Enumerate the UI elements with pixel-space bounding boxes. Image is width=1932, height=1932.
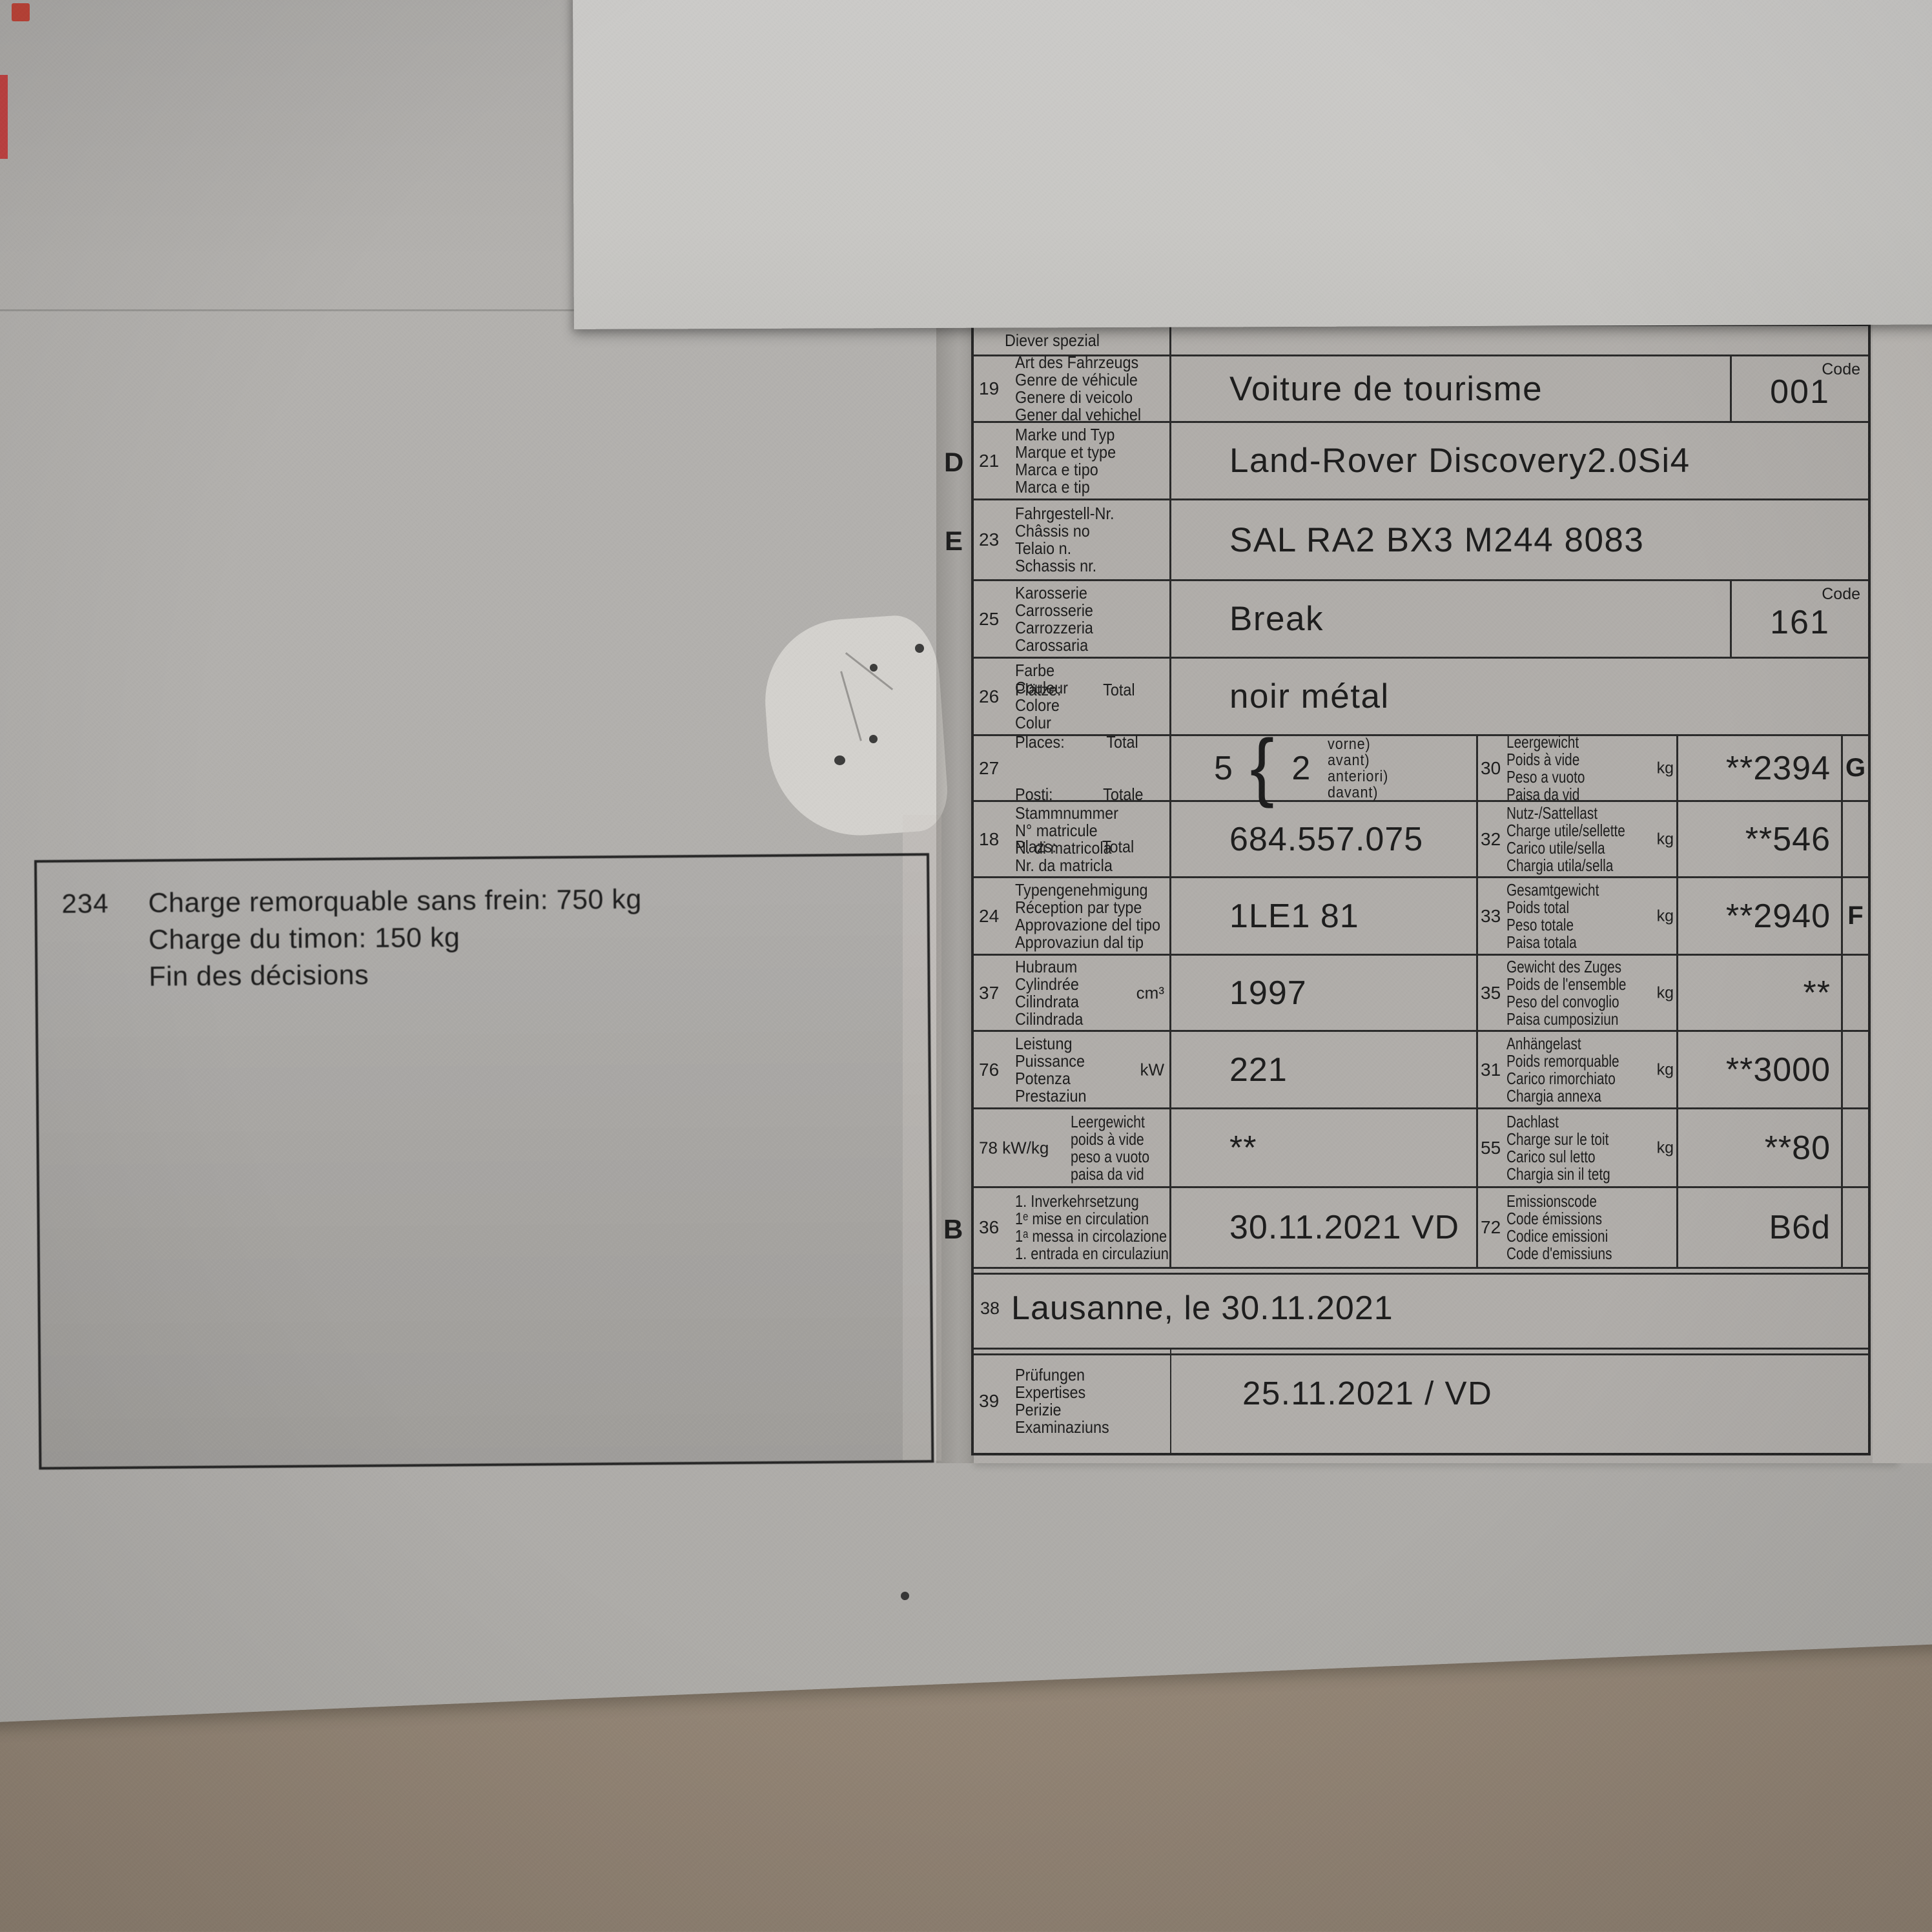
field-number: 78 kW/kg [979, 1138, 1049, 1158]
code-cell: Code 161 [1730, 581, 1868, 657]
paper-speck-dot [915, 644, 924, 653]
label-cell: 23 Fahrgestell-Nr. Châssis no Telaio n. … [974, 500, 1171, 579]
make-type-value: Land-Rover Discovery2.0Si4 [1171, 423, 1868, 498]
trailer-load-value: **3000 [1676, 1032, 1841, 1107]
field-label-line: Paisa totala [1506, 934, 1599, 951]
field-label-line: Puissance [1015, 1053, 1087, 1070]
field-label-line: Typengenehmigung [1015, 881, 1160, 899]
first-registration-value: 30.11.2021 VD [1171, 1188, 1476, 1267]
letter-cell [1841, 802, 1868, 876]
label-cell: Diever spezial [974, 326, 1171, 355]
empty-cell [1171, 326, 1868, 355]
field-label-line: Leergewicht [1506, 734, 1585, 751]
seats-value-cell: 5 { 2 vorne) avant) anteriori) davant) [1171, 736, 1476, 800]
field-label-line: Approvaziun dal tip [1015, 934, 1160, 951]
page-shadow-gap [936, 322, 976, 1463]
field-number: 37 [979, 983, 999, 1003]
registration-row-24-33: 24 Typengenehmigung Réception par type A… [974, 878, 1868, 956]
registration-row-19: 19 Art des Fahrzeugs Genre de véhicule G… [974, 356, 1868, 423]
field-label-line: Schassis nr. [1015, 557, 1114, 575]
photo-background: { "note": { "number": "234", "line1": "C… [0, 0, 1932, 1932]
displacement-value: 1997 [1171, 956, 1476, 1030]
permit-table: Diever spezial 19 Art des Fahrzeugs Genr… [971, 324, 1871, 1455]
field-number: 30 [1481, 758, 1501, 779]
paper-speck-dot [869, 735, 878, 743]
field-label-line: Fahrgestell-Nr. [1015, 505, 1114, 522]
field-label-line: Emissionscode [1506, 1193, 1612, 1210]
field-labels: Typengenehmigung Réception par type Appr… [1015, 881, 1160, 951]
field-label-line: Genere di veicolo [1015, 389, 1141, 406]
registration-row-36-72: 36 1. Inverkehrsetzung 1ᵉ mise en circul… [974, 1188, 1868, 1269]
field-labels: Stammnummer N° matricule N. di matricola… [1015, 805, 1118, 874]
field-labels: Fahrgestell-Nr. Châssis no Telaio n. Sch… [1015, 505, 1114, 575]
field-label-line: Carrosserie [1015, 602, 1093, 619]
field-label-line: Gewicht des Zuges [1506, 958, 1627, 976]
field-labels: Karosserie Carrosserie Carrozzeria Caros… [1015, 584, 1093, 654]
unit-label: kg [1657, 983, 1674, 1002]
right-label-cell: 32 Nutz-/Sattellast Charge utile/sellett… [1476, 802, 1676, 876]
field-label-line: Prestaziun [1015, 1087, 1087, 1105]
train-weight-value: ** [1676, 956, 1841, 1030]
unit-label: kg [1657, 1138, 1674, 1157]
field-label-line: Gener dal vehichel [1015, 406, 1141, 424]
total-weight-value: **2940 [1676, 878, 1841, 954]
letter-cell [1841, 1032, 1868, 1107]
field-number: 26 [979, 686, 999, 707]
unit-label: cm³ [1136, 983, 1164, 1003]
letter-cell [1841, 1188, 1868, 1267]
label-cell: 19 Art des Fahrzeugs Genre de véhicule G… [974, 356, 1171, 421]
registration-row-top-partial: Diever spezial [974, 326, 1868, 356]
paper-speck-dot [870, 664, 878, 672]
field-label-line: N. di matricola [1015, 839, 1118, 857]
field-labels: Emissionscode Code émissions Codice emis… [1506, 1193, 1612, 1262]
registration-row-23: 23 Fahrgestell-Nr. Châssis no Telaio n. … [974, 500, 1868, 581]
right-label-cell: 31 Anhängelast Poids remorquable Carico … [1476, 1032, 1676, 1107]
field-number: 72 [1481, 1217, 1501, 1238]
letter-cell: G [1841, 736, 1868, 800]
label-cell: 21 Marke und Typ Marque et type Marca e … [974, 423, 1171, 498]
field-label-line: paisa da vid [1071, 1166, 1149, 1183]
field-label-line: Marca e tipo [1015, 461, 1116, 478]
field-number: 24 [979, 906, 999, 927]
field-label-line: Chargia utila/sella [1506, 857, 1625, 874]
note-box: 234 Charge remorquable sans frein: 750 k… [34, 853, 934, 1470]
field-label-line: Paisa cumposiziun [1506, 1011, 1627, 1028]
code-label: Code [1822, 585, 1860, 604]
field-labels: Nutz-/Sattellast Charge utile/sellette C… [1506, 805, 1625, 874]
field-label-line: Hubraum [1015, 958, 1083, 976]
field-label-line: peso a vuoto [1071, 1148, 1149, 1166]
field-label-line: Chargia sin il tetg [1506, 1166, 1610, 1183]
field-label-line: Nutz-/Sattellast [1506, 805, 1625, 822]
field-label-line: Marca e tip [1015, 478, 1116, 496]
field-label-line: Diever spezial [1005, 332, 1100, 349]
field-number: 38 [980, 1299, 1000, 1319]
field-number: 39 [979, 1391, 999, 1412]
label-cell: 78 kW/kg Leergewicht poids à vide peso a… [974, 1109, 1171, 1186]
code-value: 161 [1732, 602, 1868, 641]
right-label-cell: 72 Emissionscode Code émissions Codice e… [1476, 1188, 1676, 1267]
field-label-line: Approvazione del tipo [1015, 916, 1160, 934]
label-cell: 36 1. Inverkehrsetzung 1ᵉ mise en circul… [974, 1188, 1171, 1267]
seats-front-value: 2 [1291, 749, 1311, 788]
label-cell: 24 Typengenehmigung Réception par type A… [974, 878, 1171, 954]
field-label-line: Cilindrata [1015, 993, 1083, 1011]
note-text: Charge remorquable sans frein: 750 kg Ch… [148, 881, 642, 996]
field-label-line: 1. Inverkehrsetzung [1015, 1193, 1169, 1210]
unit-label: kg [1657, 830, 1674, 848]
registration-row-37-35: 37 Hubraum Cylindrée Cilindrata Cilindra… [974, 956, 1868, 1032]
registration-row-18-32: 18 Stammnummer N° matricule N. di matric… [974, 802, 1868, 878]
field-label-line: Cylindrée [1015, 976, 1083, 993]
field-label-line: Peso totale [1506, 916, 1599, 934]
field-number: 32 [1481, 829, 1501, 850]
field-labels: Dachlast Charge sur le toit Carico sul l… [1506, 1113, 1610, 1183]
note-number: 234 [61, 888, 108, 920]
field-labels: Anhängelast Poids remorquable Carico rim… [1506, 1035, 1619, 1105]
label-cell: 25 Karosserie Carrosserie Carrozzeria Ca… [974, 581, 1171, 657]
field-labels: Leergewicht Poids à vide Peso a vuoto Pa… [1506, 734, 1585, 803]
field-label-line: Anhängelast [1506, 1035, 1619, 1053]
right-label-cell: 33 Gesamtgewicht Poids total Peso totale… [1476, 878, 1676, 954]
field-label-line: Genre de véhicule [1015, 371, 1141, 389]
unit-label: kg [1657, 759, 1674, 777]
field-label-line: Plätze: Total [1015, 681, 1144, 699]
field-label-line: Châssis no [1015, 522, 1114, 540]
note-line: Fin des décisions [149, 955, 642, 996]
field-labels: Gewicht des Zuges Poids de l'ensemble Pe… [1506, 958, 1627, 1028]
field-label-line: Carico rimorchiato [1506, 1070, 1619, 1087]
field-label-line: davant) [1328, 785, 1388, 801]
field-label-line: Peso del convoglio [1506, 993, 1627, 1011]
colour-value: noir métal [1171, 659, 1868, 734]
registration-row-38: 38 Lausanne, le 30.11.2021 [974, 1269, 1868, 1350]
vehicle-type-value: Voiture de tourisme [1171, 356, 1730, 421]
field-labels: Art des Fahrzeugs Genre de véhicule Gene… [1015, 354, 1141, 424]
field-label-line: Cilindrada [1015, 1011, 1083, 1028]
red-mark-bar [0, 75, 8, 159]
field-label-line: Leistung [1015, 1035, 1087, 1053]
empty-weight-value: **2394 [1676, 736, 1841, 800]
field-label-line: Poids de l'ensemble [1506, 976, 1627, 993]
power-weight-value: ** [1171, 1109, 1476, 1186]
field-labels: 1. Inverkehrsetzung 1ᵉ mise en circulati… [1015, 1193, 1169, 1262]
registration-row-39: 39 Prüfungen Expertises Perizie Examinaz… [974, 1350, 1868, 1453]
field-labels: Leergewicht poids à vide peso a vuoto pa… [1071, 1113, 1149, 1183]
permit-page-right-margin [1873, 322, 1932, 1463]
note-line: Charge du timon: 150 kg [149, 918, 642, 959]
letter-cell [1841, 956, 1868, 1030]
field-label-line: Prüfungen [1015, 1366, 1109, 1384]
code-value: 001 [1732, 373, 1868, 411]
emissions-code-value: B6d [1676, 1188, 1841, 1267]
label-cell: 39 Prüfungen Expertises Perizie Examinaz… [974, 1350, 1171, 1453]
field-number: 25 [979, 609, 999, 630]
field-label-line: poids à vide [1071, 1131, 1149, 1148]
letter-cell [1841, 1109, 1868, 1186]
field-number: 19 [979, 378, 999, 399]
field-label-line: Perizie [1015, 1401, 1109, 1419]
margin-letter-e: E [945, 526, 963, 557]
field-labels: Marke und Typ Marque et type Marca e tip… [1015, 426, 1116, 496]
label-cell: 27 Plätze: Total Places: Total Posti: To… [974, 736, 1171, 800]
field-label-line: N° matricule [1015, 822, 1118, 839]
field-label-line: vorne) [1328, 736, 1388, 752]
margin-letter-b: B [943, 1214, 963, 1245]
field-label-line: 1ᵉ mise en circulation [1015, 1210, 1169, 1228]
field-label-line: Marke und Typ [1015, 426, 1116, 444]
field-label-line: avant) [1328, 752, 1388, 768]
letter-cell: F [1841, 878, 1868, 954]
field-number: 21 [979, 451, 999, 471]
paper-crease [0, 309, 576, 311]
field-label-line: Examinaziuns [1015, 1419, 1109, 1436]
matriculation-number-value: 684.557.075 [1171, 802, 1476, 876]
field-label-line: Paisa da vid [1506, 786, 1585, 803]
field-number: 31 [1481, 1060, 1501, 1080]
label-cell: 18 Stammnummer N° matricule N. di matric… [974, 802, 1171, 876]
body-type-value: Break [1171, 581, 1730, 657]
chassis-number-value: SAL RA2 BX3 M244 8083 [1171, 500, 1868, 579]
seats-total-value: 5 [1214, 749, 1233, 788]
registration-row-27-30: 27 Plätze: Total Places: Total Posti: To… [974, 736, 1868, 802]
field-label-line: Telaio n. [1015, 540, 1114, 557]
label-cell: 37 Hubraum Cylindrée Cilindrata Cilindra… [974, 956, 1171, 1030]
field-number: 18 [979, 829, 999, 850]
field-number: 27 [979, 758, 999, 779]
field-label-line: Carrozzeria [1015, 619, 1093, 637]
inspection-date-value: 25.11.2021 / VD [1171, 1350, 1868, 1453]
field-label-line: Peso a vuoto [1506, 768, 1585, 786]
field-label-line: Poids total [1506, 899, 1599, 916]
field-label-line: Charge sur le toit [1506, 1131, 1610, 1148]
field-label-line: Charge utile/sellette [1506, 822, 1625, 839]
field-number: 23 [979, 529, 999, 550]
field-labels: Prüfungen Expertises Perizie Examinaziun… [1015, 1366, 1109, 1436]
code-cell: Code 001 [1730, 356, 1868, 421]
field-label-line: Places: Total [1015, 734, 1144, 751]
field-label-line: Carico sul letto [1506, 1148, 1610, 1166]
field-number: 35 [1481, 983, 1501, 1003]
front-seat-labels: vorne) avant) anteriori) davant) [1328, 736, 1388, 801]
red-mark-square [12, 3, 30, 21]
field-label-line: 1ᵃ messa in circolazione [1015, 1228, 1169, 1245]
registration-row-78-55: 78 kW/kg Leergewicht poids à vide peso a… [974, 1109, 1868, 1188]
power-value: 221 [1171, 1032, 1476, 1107]
type-approval-value: 1LE1 81 [1171, 878, 1476, 954]
roof-load-value: **80 [1676, 1109, 1841, 1186]
field-labels: Leistung Puissance Potenza Prestaziun [1015, 1035, 1087, 1105]
field-label-line: Carico utile/sella [1506, 839, 1625, 857]
field-number: 36 [979, 1217, 999, 1238]
field-label-line: Expertises [1015, 1384, 1109, 1401]
registration-row-76-31: 76 Leistung Puissance Potenza Prestaziun… [974, 1032, 1868, 1109]
paper-speck-dot [834, 755, 845, 765]
field-label-line: Karosserie [1015, 584, 1093, 602]
unit-label: kg [1657, 1060, 1674, 1079]
field-label-line: Potenza [1015, 1070, 1087, 1087]
unit-label: kW [1140, 1060, 1164, 1080]
unit-label: kg [1657, 907, 1674, 925]
field-label-line: Réception par type [1015, 899, 1160, 916]
field-labels: Gesamtgewicht Poids total Peso totale Pa… [1506, 881, 1599, 951]
field-labels: Hubraum Cylindrée Cilindrata Cilindrada [1015, 958, 1083, 1028]
field-label-line: Gesamtgewicht [1506, 881, 1599, 899]
note-line: Charge remorquable sans frein: 750 kg [148, 881, 642, 922]
field-label-line: 1. entrada en circulaziun [1015, 1245, 1169, 1262]
field-label-line: Code d'emissiuns [1506, 1245, 1612, 1262]
right-label-cell: 30 Leergewicht Poids à vide Peso a vuoto… [1476, 736, 1676, 800]
paper-top-shade [0, 0, 581, 336]
field-label-line: Art des Fahrzeugs [1015, 354, 1141, 371]
right-label-cell: 55 Dachlast Charge sur le toit Carico su… [1476, 1109, 1676, 1186]
field-number: 55 [1481, 1138, 1501, 1158]
brace-glyph: { [1250, 723, 1275, 810]
field-label-line: Poids à vide [1506, 751, 1585, 768]
top-white-sheet [573, 0, 1932, 329]
margin-letter-d: D [944, 447, 963, 478]
field-label-line: Code émissions [1506, 1210, 1612, 1228]
field-label-line: Nr. da matricla [1015, 857, 1118, 874]
field-label-line: Codice emissioni [1506, 1228, 1612, 1245]
field-number: 33 [1481, 906, 1501, 927]
field-label-line: Posti: Totale [1015, 786, 1144, 803]
field-label-line: Marque et type [1015, 444, 1116, 461]
field-label-line: anteriori) [1328, 768, 1388, 785]
payload-value: **546 [1676, 802, 1841, 876]
field-label-line: Stammnummer [1015, 805, 1118, 822]
field-number: 76 [979, 1060, 999, 1080]
label-cell: 76 Leistung Puissance Potenza Prestaziun… [974, 1032, 1171, 1107]
paper-speck-dot [901, 1592, 909, 1600]
field-label-line: Dachlast [1506, 1113, 1610, 1131]
registration-row-21: 21 Marke und Typ Marque et type Marca e … [974, 423, 1868, 500]
issue-place-date-value: Lausanne, le 30.11.2021 [1011, 1289, 1393, 1328]
field-label-line: Chargia annexa [1506, 1087, 1619, 1105]
field-label-line: Leergewicht [1071, 1113, 1149, 1131]
right-label-cell: 35 Gewicht des Zuges Poids de l'ensemble… [1476, 956, 1676, 1030]
field-label-line: Poids remorquable [1506, 1053, 1619, 1070]
